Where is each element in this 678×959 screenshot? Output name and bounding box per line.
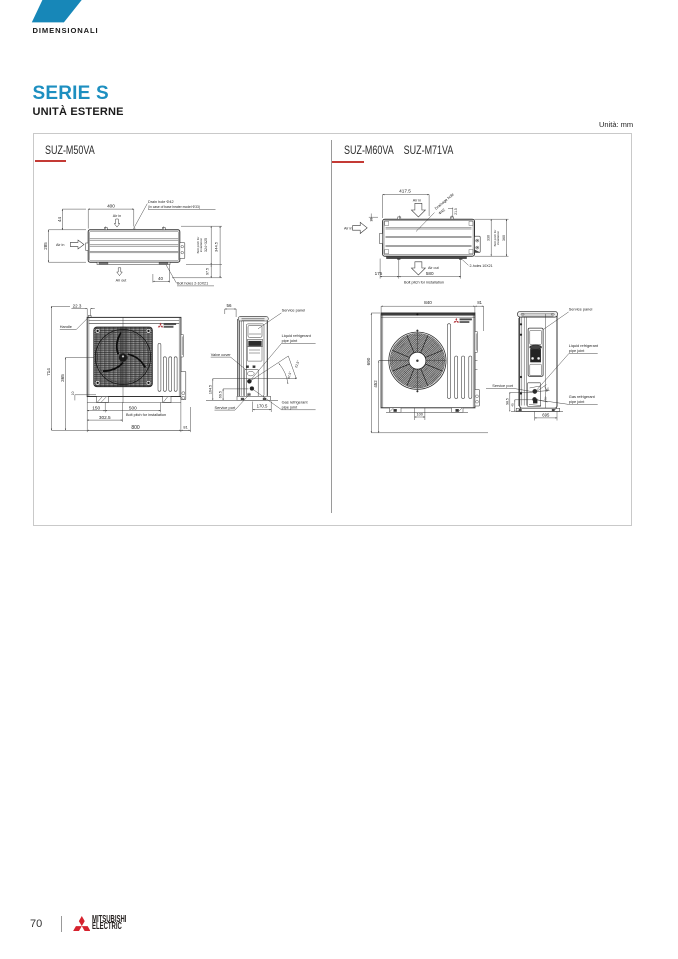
svg-text:714: 714 bbox=[46, 368, 51, 376]
svg-text:20°: 20° bbox=[543, 396, 548, 401]
svg-text:100: 100 bbox=[416, 411, 423, 416]
svg-text:150: 150 bbox=[92, 405, 100, 410]
svg-text:Air out: Air out bbox=[428, 266, 439, 270]
svg-text:580: 580 bbox=[426, 271, 434, 276]
svg-text:175: 175 bbox=[375, 271, 383, 276]
svg-text:22.5°: 22.5° bbox=[294, 359, 301, 368]
svg-text:97.5: 97.5 bbox=[206, 268, 210, 275]
svg-text:170.5: 170.5 bbox=[257, 404, 268, 409]
svg-text:22.3: 22.3 bbox=[73, 303, 82, 308]
svg-text:Drain hole Φ42: Drain hole Φ42 bbox=[148, 200, 174, 204]
svg-text:98.5: 98.5 bbox=[505, 398, 509, 405]
svg-text:Air in: Air in bbox=[56, 243, 64, 247]
svg-text:840: 840 bbox=[424, 300, 432, 305]
svg-text:344.5: 344.5 bbox=[213, 241, 218, 252]
svg-text:2-holes 10X21: 2-holes 10X21 bbox=[470, 264, 493, 268]
svg-text:164.5: 164.5 bbox=[208, 385, 212, 394]
svg-text:installation: installation bbox=[496, 231, 500, 246]
svg-text:500: 500 bbox=[129, 405, 137, 410]
svg-text:21.5: 21.5 bbox=[454, 208, 458, 215]
svg-text:pipe joint: pipe joint bbox=[282, 338, 298, 343]
svg-text:installation: installation bbox=[199, 238, 203, 253]
svg-text:285: 285 bbox=[43, 242, 48, 250]
svg-text:44: 44 bbox=[57, 217, 62, 223]
svg-text:330: 330 bbox=[487, 235, 491, 241]
svg-text:40: 40 bbox=[158, 276, 164, 281]
svg-text:452: 452 bbox=[373, 380, 378, 388]
svg-text:695: 695 bbox=[542, 412, 550, 417]
svg-text:Service port: Service port bbox=[215, 405, 237, 410]
svg-text:Air in: Air in bbox=[113, 214, 121, 218]
svg-text:Bolt holes 2-10X21: Bolt holes 2-10X21 bbox=[177, 282, 208, 286]
svg-text:Air in: Air in bbox=[413, 198, 421, 202]
svg-text:47.5°: 47.5° bbox=[287, 370, 293, 379]
svg-text:400: 400 bbox=[107, 204, 115, 209]
svg-text:81: 81 bbox=[477, 300, 482, 305]
svg-text:Drainage hole: Drainage hole bbox=[434, 192, 455, 210]
svg-text:Air in: Air in bbox=[344, 226, 352, 230]
svg-text:Bolt pitch for installation: Bolt pitch for installation bbox=[126, 413, 166, 417]
svg-text:302.5: 302.5 bbox=[99, 415, 111, 420]
svg-text:360: 360 bbox=[502, 235, 506, 241]
svg-text:Service panel: Service panel bbox=[569, 307, 593, 312]
svg-text:pipe joint: pipe joint bbox=[569, 348, 585, 353]
svg-text:Valve cover: Valve cover bbox=[211, 352, 232, 357]
svg-text:pipe joint: pipe joint bbox=[282, 404, 298, 409]
svg-text:10: 10 bbox=[71, 391, 75, 395]
svg-text:40°: 40° bbox=[545, 386, 550, 391]
svg-text:56: 56 bbox=[226, 303, 232, 308]
svg-text:690: 690 bbox=[366, 357, 371, 365]
svg-text:Φ42: Φ42 bbox=[438, 208, 446, 216]
svg-text:Bolt pitch for installation: Bolt pitch for installation bbox=[404, 280, 444, 284]
svg-text:417.5: 417.5 bbox=[399, 189, 411, 194]
svg-text:(In case of base heater model: (In case of base heater model Φ33) bbox=[148, 205, 200, 209]
svg-text:pipe joint: pipe joint bbox=[569, 399, 585, 404]
svg-text:Handle: Handle bbox=[60, 325, 72, 329]
svg-text:Air out: Air out bbox=[116, 278, 127, 282]
svg-text:365: 365 bbox=[60, 374, 65, 382]
svg-text:81: 81 bbox=[183, 425, 187, 430]
svg-text:324÷325: 324÷325 bbox=[204, 238, 208, 252]
svg-text:69.5: 69.5 bbox=[219, 391, 223, 398]
svg-text:35: 35 bbox=[370, 218, 374, 222]
svg-text:Service port: Service port bbox=[492, 383, 514, 388]
svg-text:Service panel: Service panel bbox=[282, 308, 306, 313]
svg-text:45: 45 bbox=[510, 403, 514, 407]
